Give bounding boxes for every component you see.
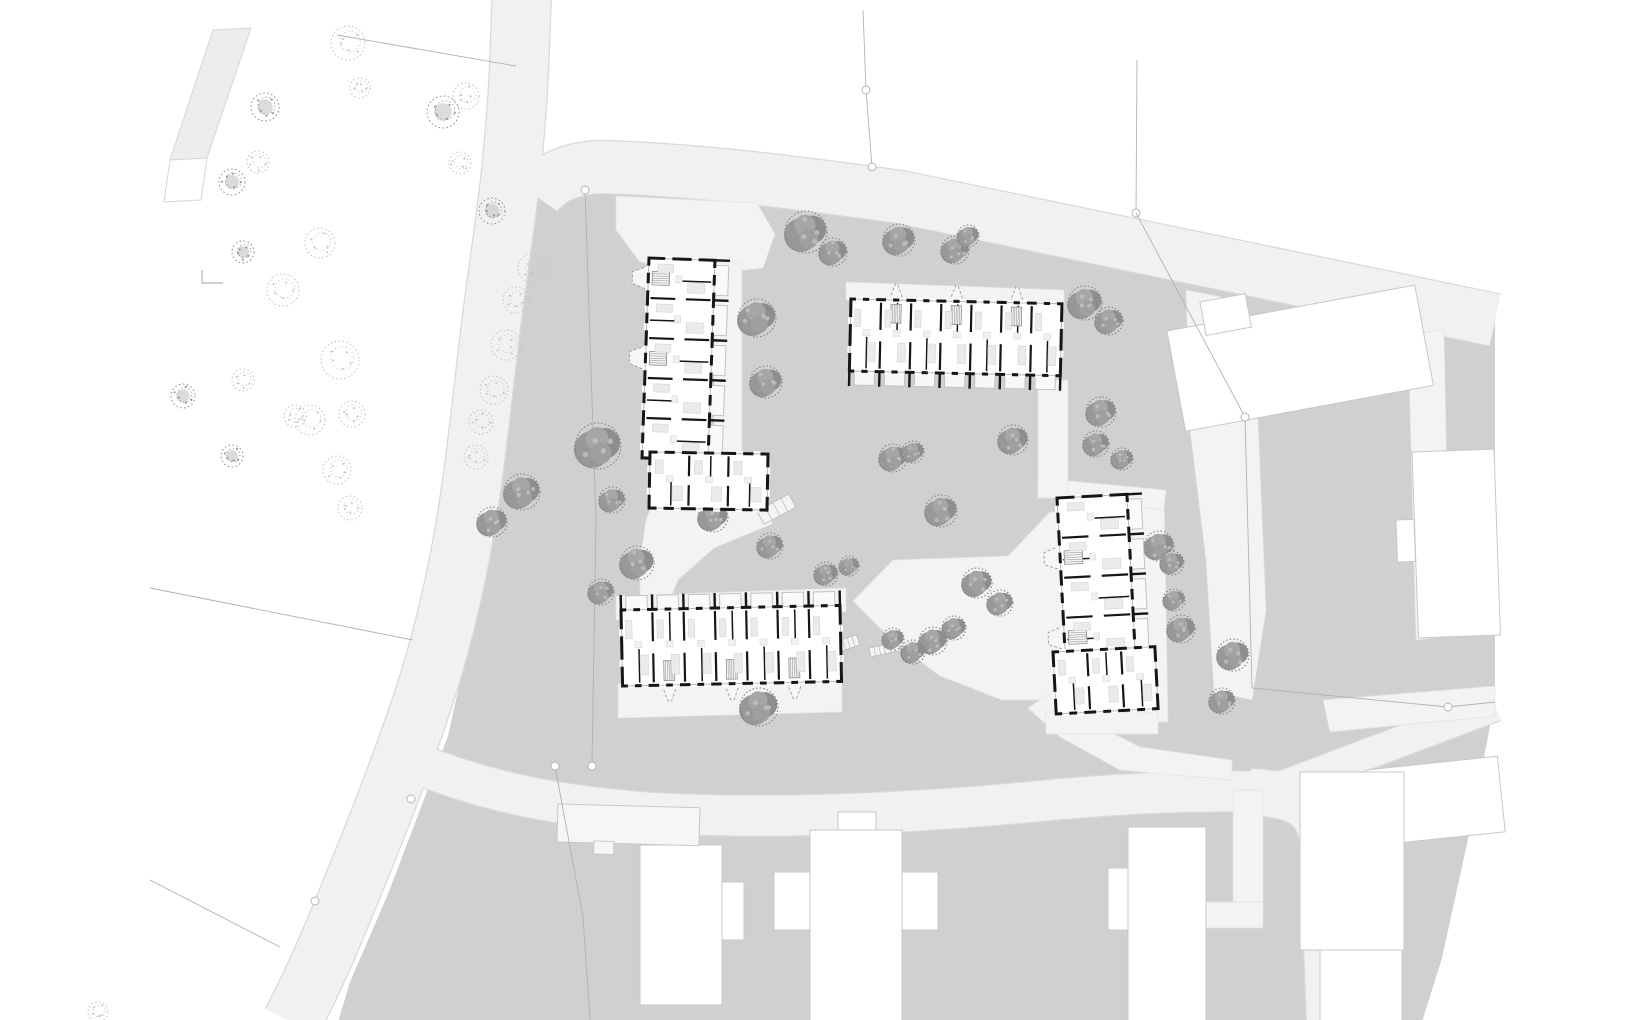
context-south-cross-west <box>774 872 810 930</box>
park-tree <box>171 384 195 408</box>
park-path-strip <box>170 28 251 160</box>
park-tree <box>338 496 362 520</box>
park-tree <box>427 96 459 128</box>
site-line-east-marker <box>1444 703 1452 711</box>
park-line-south-marker <box>311 897 319 905</box>
park-tree <box>232 241 254 263</box>
park-tree <box>88 1002 108 1020</box>
site-tree <box>818 238 847 266</box>
park-tree <box>267 274 299 306</box>
park-tree <box>232 369 254 391</box>
park-tree <box>251 93 279 121</box>
context-east-tower-step <box>1396 519 1415 562</box>
park-tree <box>305 228 335 258</box>
site-line-west-marker <box>581 186 589 194</box>
building-a-wing <box>646 449 770 512</box>
park-tree <box>339 401 365 427</box>
park-tree <box>323 456 351 484</box>
park-tree <box>321 341 359 379</box>
site-tree <box>1166 615 1195 643</box>
context-south-east-lower <box>1320 950 1402 1020</box>
parcel-line-northeast <box>1136 60 1137 213</box>
park-layer <box>164 28 251 283</box>
park-line-south <box>150 880 280 947</box>
parcel-line-north-marker <box>862 86 870 94</box>
park-line-mid-marker <box>407 795 415 803</box>
context-south-cross-east <box>902 872 938 930</box>
context-south-west-step <box>722 882 744 940</box>
park-tree <box>219 169 245 195</box>
site-tree <box>1094 307 1123 335</box>
park-tree <box>284 405 306 427</box>
park-tree <box>247 151 269 173</box>
park-tree <box>331 26 365 60</box>
roadside-shed <box>557 804 700 846</box>
context-south-east <box>1300 772 1404 950</box>
park-tree <box>221 445 243 467</box>
path-b-to-d <box>1038 380 1068 498</box>
roadside-shed-step <box>594 841 614 855</box>
context-south-mid <box>1128 827 1206 1020</box>
context-south-mid-step <box>1108 868 1128 930</box>
building-a <box>626 255 730 463</box>
park-line-mid <box>150 588 413 640</box>
corner-mark <box>202 270 223 283</box>
parcel-line-north-marker <box>868 163 876 171</box>
context-south-cross-main <box>810 830 902 1020</box>
park-tree <box>449 152 471 174</box>
site-plan-svg <box>0 0 1640 1020</box>
site-plan <box>0 0 1640 1020</box>
context-south-cross-top <box>838 812 876 830</box>
site-line-west-marker <box>588 762 596 770</box>
park-path-end <box>164 158 207 202</box>
building-d-wing <box>1050 644 1160 717</box>
context-east-tower <box>1412 449 1500 638</box>
site-line-southwest-marker <box>551 762 559 770</box>
park-line-north <box>337 35 516 66</box>
context-south-west <box>640 845 722 1005</box>
park-tree <box>350 78 370 98</box>
site-line-east-marker <box>1241 413 1249 421</box>
walk-southeast-a <box>1233 790 1263 912</box>
